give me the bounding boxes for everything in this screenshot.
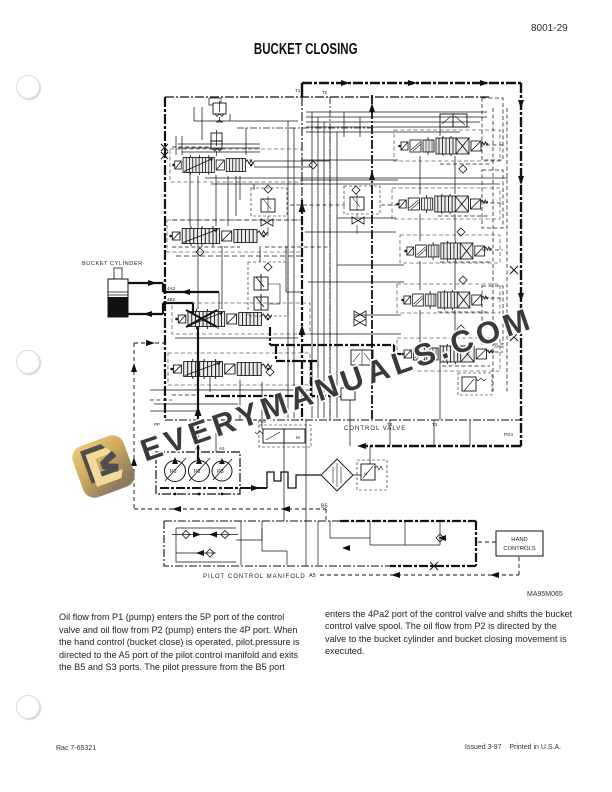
svg-text:EVERYMANUALS.COM: EVERYMANUALS.COM: [136, 301, 538, 469]
